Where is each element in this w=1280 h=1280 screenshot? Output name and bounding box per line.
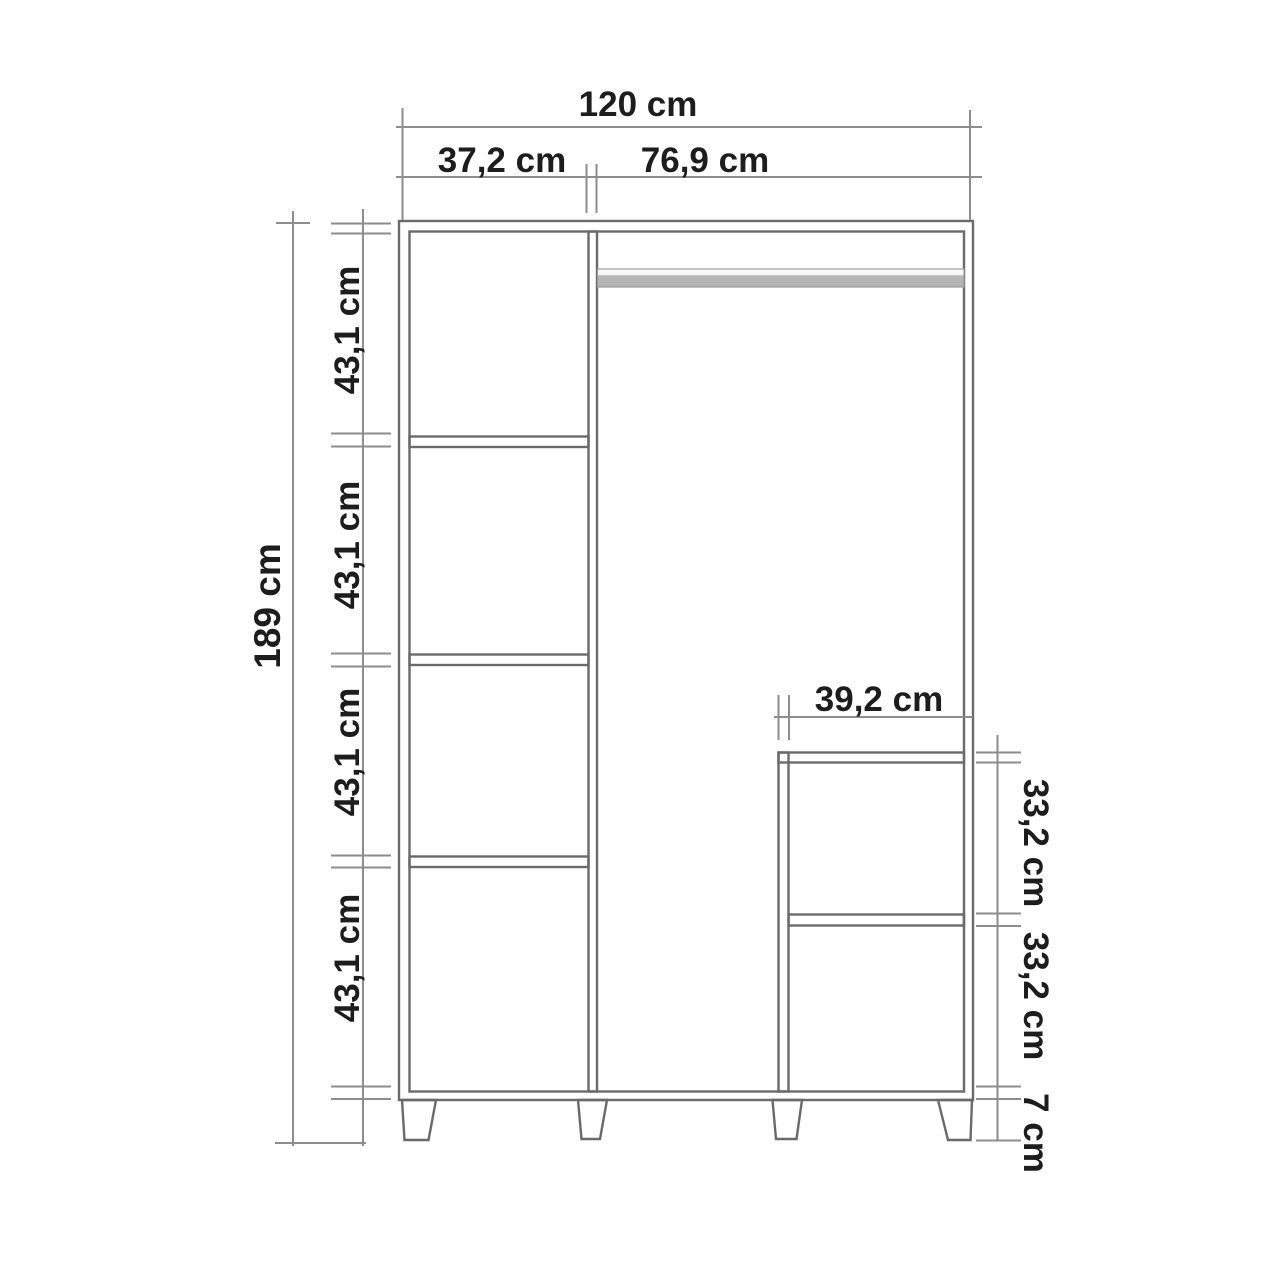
cabinet-inner-outline [410,232,965,1092]
dim-label-shelf-section-2: 43,1 cm [328,481,367,609]
dim-label-inner-unit-width: 39,2 cm [815,680,943,719]
left-shelf-3 [410,857,589,868]
dim-label-shelf-section-1: 43,1 cm [328,266,367,394]
inner-unit-top-panel [779,753,965,763]
dim-label-shelf-section-4: 43,1 cm [328,894,367,1022]
dim-label-total-height: 189 cm [247,543,288,669]
dim-label-inner-section-2: 33,2 cm [1016,932,1055,1060]
leg-1 [402,1100,436,1140]
diagram-page: 120 cm 37,2 cm 76,9 cm 189 cm 43,1 cm 43… [0,0,1280,1280]
dim-label-inner-section-1: 33,2 cm [1016,779,1055,907]
dim-label-left-column-width: 37,2 cm [438,141,566,180]
center-divider-panel [589,232,598,1092]
inner-unit-side-panel [779,753,789,1092]
hanging-rail [598,269,965,287]
cabinet-outer-outline [399,221,973,1100]
leg-2 [578,1100,607,1139]
leg-4 [938,1100,972,1140]
dim-label-right-column-width: 76,9 cm [641,141,769,180]
dim-label-total-width: 120 cm [579,85,698,124]
left-shelf-2 [410,655,589,666]
dim-label-leg-height: 7 cm [1016,1093,1055,1173]
leg-3 [773,1100,803,1139]
left-shelf-1 [410,437,589,448]
dim-label-shelf-section-3: 43,1 cm [328,688,367,816]
inner-unit-shelf [789,915,965,926]
wardrobe-technical-diagram: 120 cm 37,2 cm 76,9 cm 189 cm 43,1 cm 43… [0,0,1280,1280]
